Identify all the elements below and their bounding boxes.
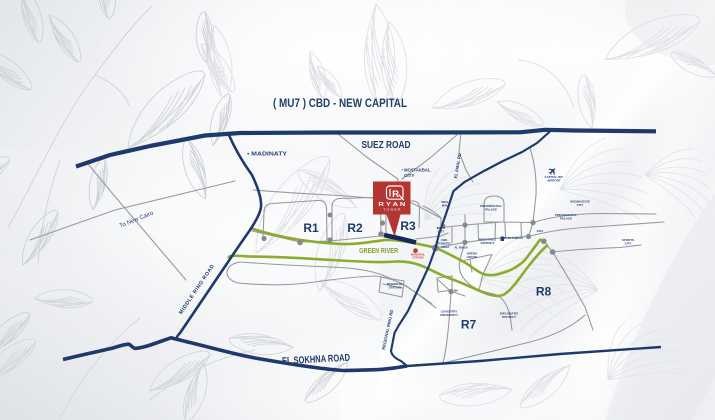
- svg-text:GREEN RIVER: GREEN RIVER: [359, 246, 399, 255]
- svg-text:GOV: GOV: [537, 229, 544, 233]
- svg-text:CITY: CITY: [577, 203, 584, 207]
- svg-text:DISTRICT: DISTRICT: [502, 315, 516, 319]
- svg-text:MALL: MALL: [442, 204, 450, 208]
- svg-text:PALACE: PALACE: [485, 208, 497, 212]
- svg-text:CITY: CITY: [625, 242, 632, 246]
- svg-text:R: R: [392, 189, 399, 200]
- svg-text:AREA: AREA: [441, 245, 450, 249]
- svg-text:• MOSTAKBAL: • MOSTAKBAL: [402, 168, 431, 173]
- svg-text:PALACE: PALACE: [560, 217, 572, 221]
- svg-text:R8: R8: [536, 285, 552, 299]
- svg-text:UNIVERSITY: UNIVERSITY: [440, 313, 458, 317]
- svg-text:R2: R2: [347, 221, 363, 235]
- svg-text:DISTRICT: DISTRICT: [481, 241, 495, 245]
- svg-text:T O W E R: T O W E R: [383, 208, 400, 212]
- svg-text:R7: R7: [461, 318, 477, 332]
- svg-text:SUEZ ROAD: SUEZ ROAD: [362, 140, 411, 151]
- svg-text:• MADINATY: • MADINATY: [247, 152, 288, 158]
- svg-text:HOUSE: HOUSE: [467, 255, 478, 259]
- svg-text:CITY: CITY: [404, 173, 414, 178]
- svg-text:AL MASA: AL MASA: [454, 246, 468, 250]
- svg-text:AIRPORT: AIRPORT: [547, 179, 561, 183]
- svg-text:PARLIAMENT: PARLIAMENT: [504, 236, 524, 240]
- svg-text:R1: R1: [303, 221, 319, 235]
- svg-text:STATION: STATION: [413, 256, 424, 260]
- svg-text:STATION: STATION: [389, 286, 402, 290]
- svg-text:CITY: CITY: [438, 230, 445, 234]
- svg-text:R3: R3: [400, 219, 416, 233]
- svg-text:( MU7 ) CBD - NEW CAPITAL: ( MU7 ) CBD - NEW CAPITAL: [273, 96, 407, 110]
